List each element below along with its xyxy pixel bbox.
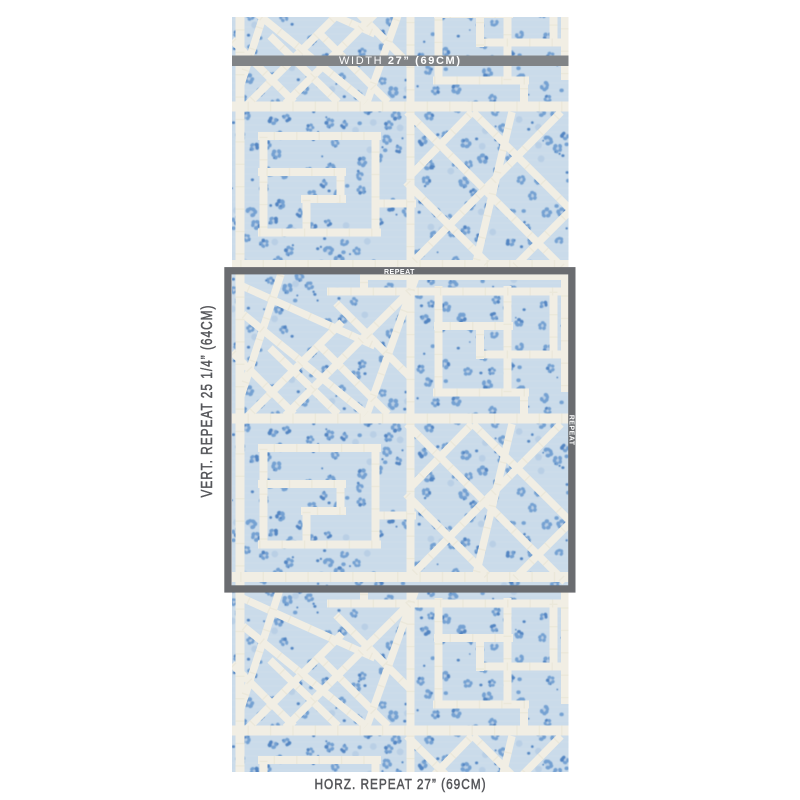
svg-text:HORZ. REPEAT 27” (69CM): HORZ. REPEAT 27” (69CM) — [315, 777, 487, 793]
svg-text:WIDTH 27” (69CM): WIDTH 27” (69CM) — [339, 55, 461, 67]
svg-text:REPEAT: REPEAT — [384, 269, 415, 276]
svg-text:VERT. REPEAT 25 1/4” (64CM): VERT. REPEAT 25 1/4” (64CM) — [199, 305, 216, 498]
svg-text:REPEAT: REPEAT — [568, 415, 575, 446]
